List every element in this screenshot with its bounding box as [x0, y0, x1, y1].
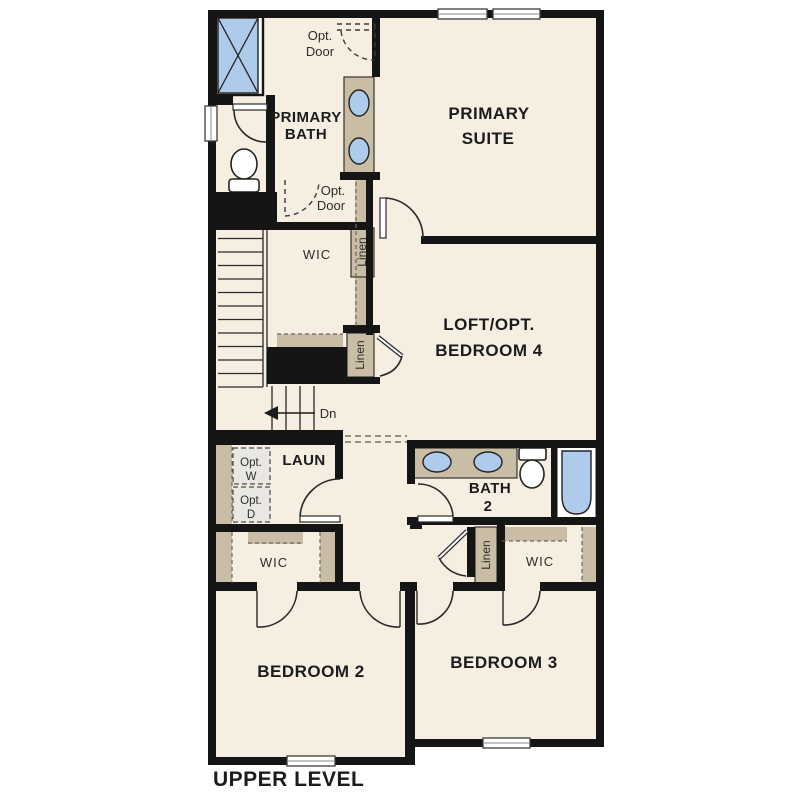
label-opt-washer-2: W: [246, 471, 257, 483]
sink-bath2-1: [423, 452, 451, 472]
label-opt-door-wic-1: Opt.: [321, 183, 346, 198]
label-loft-1: LOFT/OPT.: [443, 315, 534, 334]
label-bath2-2: 2: [484, 498, 493, 515]
laundry-side-strip: [216, 445, 232, 524]
wall-suite-loft: [421, 236, 596, 244]
wall-bath2-top: [407, 440, 596, 448]
door-leaf-bath2: [418, 516, 453, 522]
bathtub: [562, 451, 591, 514]
wic3-shelf: [502, 527, 567, 541]
wic2-shelf: [248, 530, 303, 544]
wic2-right-strip: [320, 532, 335, 583]
wall-mass-stair-top: [212, 192, 277, 230]
label-linen-1: Linen: [355, 237, 369, 266]
label-wic-bedroom3: WIC: [526, 554, 554, 569]
label-primary-bath-2: BATH: [285, 126, 327, 143]
label-stairs-down: Dn: [320, 406, 337, 421]
wall-bath-wic: [277, 222, 373, 230]
wall-linen2-bottom: [347, 377, 380, 384]
wic2-left-strip: [216, 532, 232, 583]
wall-bath2-left: [407, 440, 415, 484]
sink-bath2-2: [474, 452, 502, 472]
wall-top: [212, 10, 600, 18]
label-laundry: LAUN: [282, 452, 325, 469]
label-wic-primary: WIC: [303, 247, 331, 262]
plan-title: UPPER LEVEL: [213, 768, 364, 791]
floor-plan-page: Opt. Door PRIMARY BATH PRIMARY SUITE Opt…: [0, 0, 810, 810]
wall-laundry-top: [212, 430, 343, 445]
wall-vanity-stub: [372, 13, 380, 77]
label-primary-suite-1: PRIMARY: [448, 104, 529, 123]
toilet-bowl-primary: [231, 149, 257, 179]
label-linen-3: Linen: [479, 540, 493, 569]
door-leaf-suite: [380, 198, 386, 238]
toilet-tank-bath2: [519, 448, 546, 460]
wall-mass-stair-mid: [267, 347, 347, 384]
wall-hall-bottom-a: [212, 582, 257, 591]
label-primary-bath-1: PRIMARY: [270, 109, 341, 126]
wall-hall-left: [335, 524, 343, 591]
label-opt-door-top-2: Door: [306, 44, 335, 59]
label-bedroom2: BEDROOM 2: [257, 662, 364, 681]
wall-laundry-bottom: [212, 524, 343, 532]
floor-plan-svg: Opt. Door PRIMARY BATH PRIMARY SUITE Opt…: [0, 0, 810, 810]
label-linen-2: Linen: [353, 340, 367, 369]
wall-hall-bottom-c: [400, 582, 417, 591]
wall-laundry-right: [335, 430, 343, 479]
sink-primary-1: [349, 90, 369, 116]
door-leaf-laundry: [300, 516, 340, 522]
wall-linen3-wic3: [497, 525, 505, 591]
label-opt-dryer-2: D: [247, 509, 255, 521]
wall-below-vanity: [340, 172, 380, 180]
label-loft-2: BEDROOM 4: [435, 341, 543, 360]
wall-hall-bottom-e: [540, 582, 596, 591]
wall-shower-bottom: [212, 95, 233, 105]
wic-primary-shelf: [277, 334, 343, 348]
wall-hall-bottom-d: [453, 582, 503, 591]
label-opt-door-wic-2: Door: [317, 198, 346, 213]
label-opt-door-top-1: Opt.: [308, 28, 333, 43]
door-leaf-wc: [233, 104, 267, 110]
sink-primary-2: [349, 138, 369, 164]
wall-linen2-top: [343, 325, 380, 333]
label-primary-suite-2: SUITE: [462, 129, 515, 148]
label-bath2-1: BATH: [469, 480, 511, 497]
toilet-bowl-bath2: [520, 460, 544, 488]
wall-linen3-left: [467, 527, 475, 577]
label-opt-dryer-1: Opt.: [240, 495, 262, 507]
wall-hall-bottom-b: [297, 582, 360, 591]
wall-tub-separator: [551, 445, 557, 521]
label-bedroom3: BEDROOM 3: [450, 653, 557, 672]
label-opt-washer-1: Opt.: [240, 457, 262, 469]
label-wic-bedroom2: WIC: [260, 555, 288, 570]
wall-right: [596, 10, 604, 747]
wall-party: [405, 582, 415, 765]
toilet-tank-primary: [229, 179, 259, 192]
wic3-right-strip: [582, 527, 596, 583]
